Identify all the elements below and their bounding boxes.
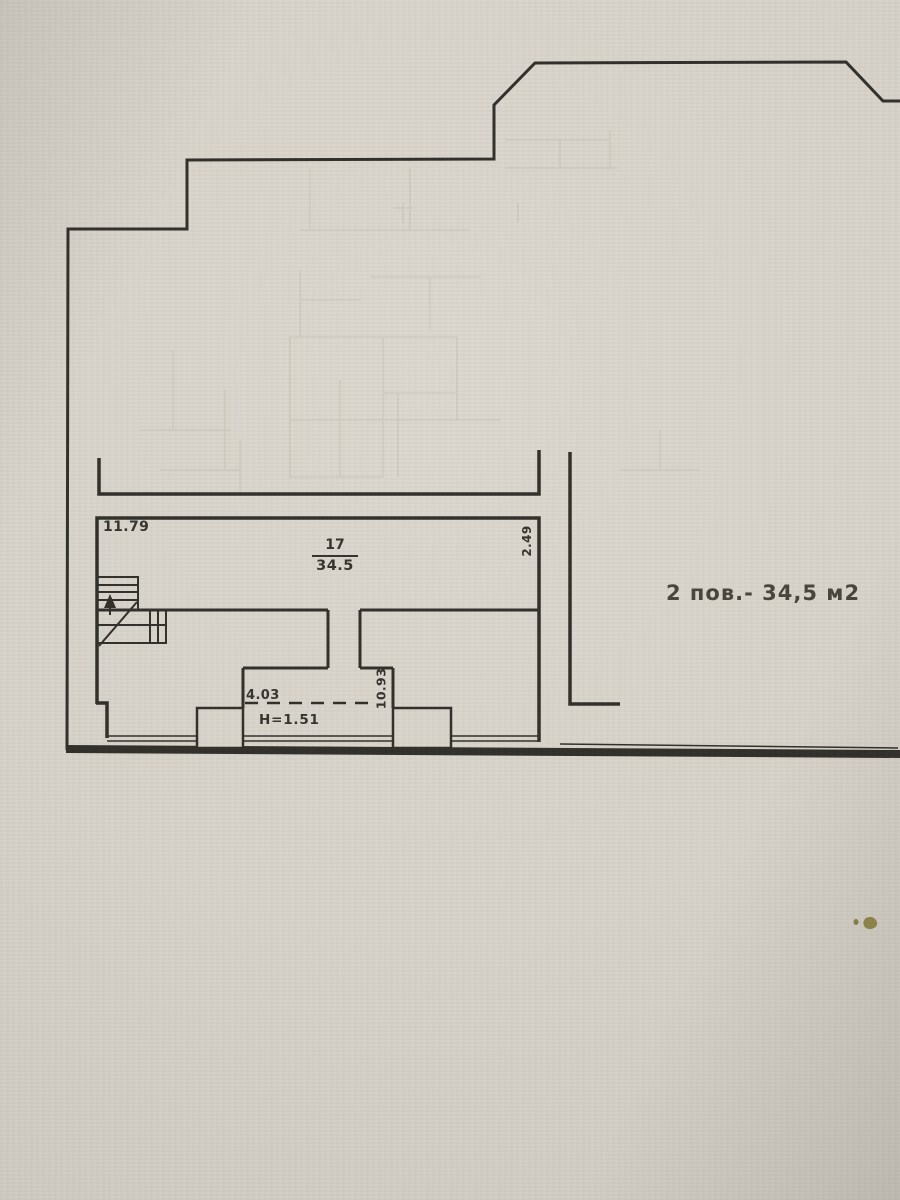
room-number-and-area: 17 34.5 [308, 537, 362, 574]
right-l-wall [570, 452, 620, 704]
scanned-floorplan-photo: 11.79 17 34.5 2.49 4.03 10.93 H=1.51 2 п… [0, 0, 900, 1200]
door-block-right [393, 708, 451, 748]
balcony-door-blocks [197, 708, 451, 748]
dimension-opening-width: 4.03 [246, 689, 280, 702]
outer-walls [66, 62, 900, 754]
ghost-bleedthrough-lines [140, 130, 700, 492]
floor-area-note: 2 пов.- 34,5 м2 [666, 583, 860, 604]
stairs-up-arrow-icon [104, 594, 116, 615]
stain-mark [854, 917, 878, 929]
dimension-room-width: 11.79 [103, 520, 149, 534]
door-block-left [197, 708, 243, 748]
room-area: 34.5 [308, 557, 362, 574]
dimension-room-depth: 2.49 [521, 518, 535, 564]
dimension-opening-depth: 10.93 [376, 664, 389, 714]
dimension-opening-height: H=1.51 [259, 714, 320, 728]
bottom-exterior-wall [66, 749, 900, 754]
room-number: 17 [312, 537, 358, 557]
window-band [107, 736, 539, 741]
hall-wall [99, 450, 539, 494]
